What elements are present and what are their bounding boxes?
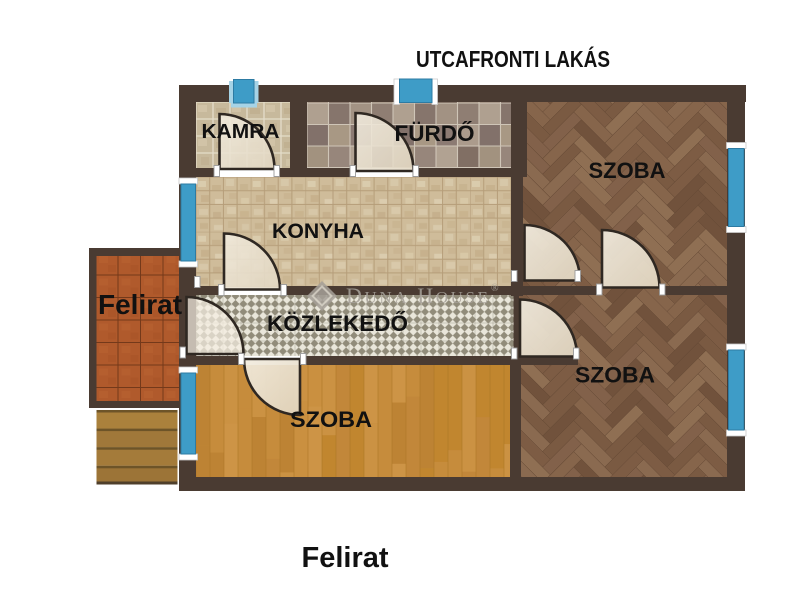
svg-text:KONYHA: KONYHA [272, 220, 364, 243]
svg-text:Felirat: Felirat [301, 542, 388, 574]
svg-text:FÜRDŐ: FÜRDŐ [395, 121, 475, 146]
svg-text:SZOBA: SZOBA [290, 407, 372, 432]
svg-text:SZOBA: SZOBA [575, 363, 655, 388]
svg-text:SZOBA: SZOBA [589, 158, 666, 183]
svg-text:KÖZLEKEDŐ: KÖZLEKEDŐ [267, 311, 408, 336]
svg-text:Felirat: Felirat [98, 289, 182, 320]
svg-text:KAMRA: KAMRA [202, 121, 280, 143]
svg-text:®: ® [491, 283, 499, 294]
svg-text:UTCAFRONTI LAKÁS: UTCAFRONTI LAKÁS [416, 45, 610, 72]
